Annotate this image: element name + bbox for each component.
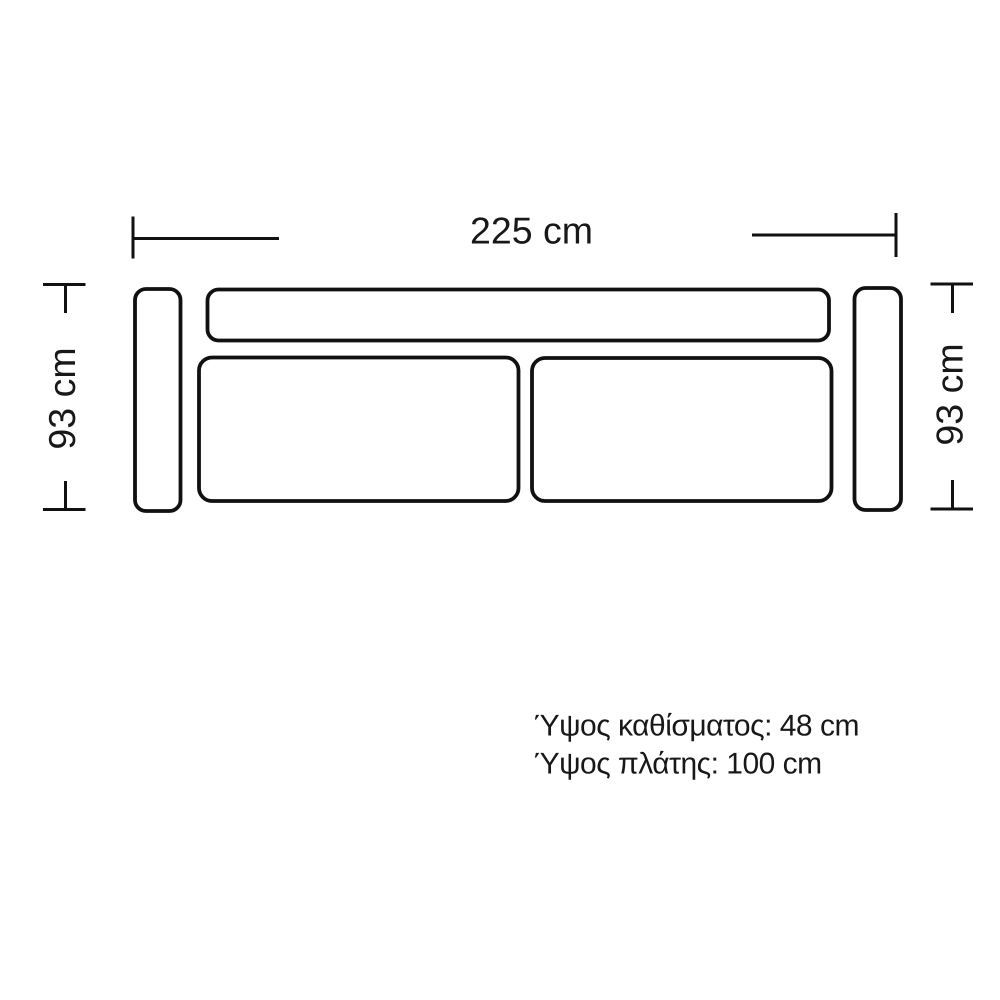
svg-text:Ύψος καθίσματος: 48 cm: Ύψος καθίσματος: 48 cm (534, 710, 859, 743)
svg-text:225 cm: 225 cm (470, 210, 593, 252)
svg-text:93 cm: 93 cm (929, 343, 971, 445)
svg-text:Ύψος πλάτης: 100 cm: Ύψος πλάτης: 100 cm (534, 748, 822, 781)
svg-text:93 cm: 93 cm (41, 347, 83, 449)
